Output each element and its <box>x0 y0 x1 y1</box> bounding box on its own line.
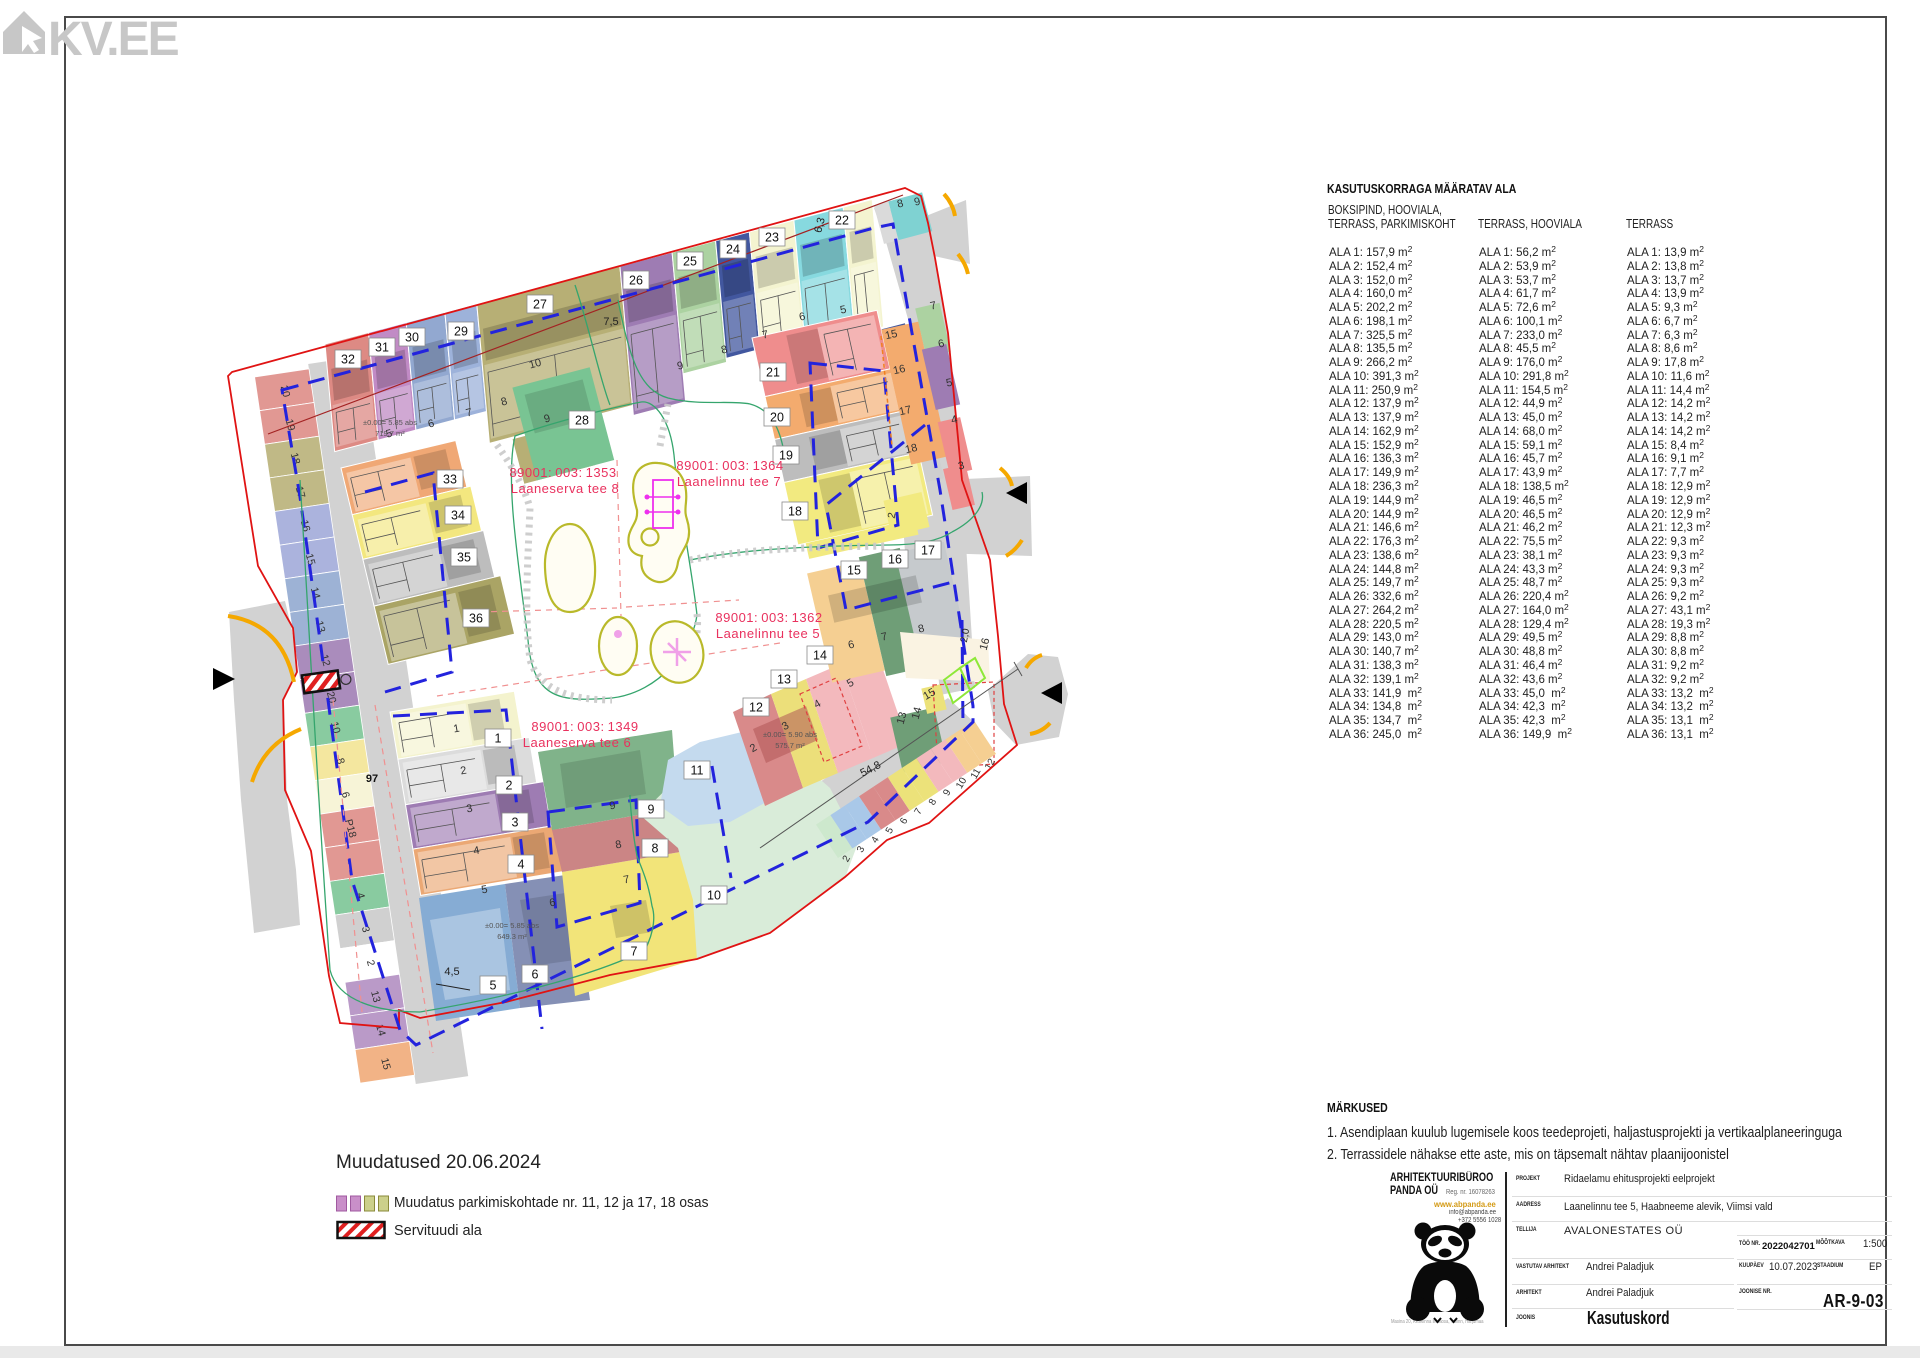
svg-text:89001: 003: 1364: 89001: 003: 1364 <box>676 458 783 473</box>
svg-text:6: 6 <box>898 816 911 827</box>
svg-text:Laaneserva tee 8: Laaneserva tee 8 <box>511 481 619 496</box>
svg-text:23: 23 <box>765 231 779 245</box>
svg-text:7,5: 7,5 <box>603 316 618 328</box>
svg-text:9: 9 <box>941 787 954 798</box>
svg-text:21: 21 <box>766 366 780 380</box>
svg-text:±0.00= 5.90 abs: ±0.00= 5.90 abs <box>763 730 817 739</box>
svg-text:31: 31 <box>375 341 389 355</box>
svg-text:26: 26 <box>629 274 643 288</box>
svg-text:8: 8 <box>652 842 659 856</box>
svg-text:Laanelinnu tee 7: Laanelinnu tee 7 <box>677 474 781 489</box>
svg-text:36: 36 <box>469 612 483 626</box>
svg-text:27: 27 <box>533 298 547 312</box>
svg-text:6: 6 <box>532 968 539 982</box>
svg-text:575.7 m²: 575.7 m² <box>775 741 805 750</box>
svg-text:4,5: 4,5 <box>444 966 459 978</box>
svg-text:89001: 003: 1349: 89001: 003: 1349 <box>531 719 638 734</box>
svg-text:89001: 003: 1353: 89001: 003: 1353 <box>509 465 616 480</box>
svg-text:Laanelinnu tee 5: Laanelinnu tee 5 <box>716 626 820 641</box>
svg-text:3: 3 <box>855 844 868 855</box>
svg-text:4: 4 <box>518 858 525 872</box>
svg-text:35: 35 <box>457 551 471 565</box>
svg-text:17: 17 <box>921 544 935 558</box>
svg-text:±0.00= 5.85 abs: ±0.00= 5.85 abs <box>363 418 417 427</box>
svg-text:12: 12 <box>749 701 763 715</box>
svg-text:7: 7 <box>631 945 638 959</box>
svg-text:32: 32 <box>341 353 355 367</box>
svg-text:4: 4 <box>869 835 882 846</box>
svg-text:8: 8 <box>927 797 940 808</box>
svg-text:97: 97 <box>366 773 378 785</box>
svg-text:1: 1 <box>495 732 502 746</box>
svg-text:15: 15 <box>847 564 861 578</box>
svg-text:5: 5 <box>490 979 497 993</box>
svg-text:16: 16 <box>888 553 902 567</box>
svg-text:10: 10 <box>707 889 721 903</box>
svg-text:29: 29 <box>454 325 468 339</box>
svg-text:34: 34 <box>451 509 465 523</box>
svg-text:Laaneserva tee 6: Laaneserva tee 6 <box>523 735 631 750</box>
svg-text:±0.00= 5.85 abs: ±0.00= 5.85 abs <box>485 921 539 930</box>
svg-text:13: 13 <box>777 673 791 687</box>
svg-text:28: 28 <box>575 414 589 428</box>
svg-text:5: 5 <box>480 884 488 897</box>
svg-text:89001: 003: 1362: 89001: 003: 1362 <box>715 610 822 625</box>
svg-text:22: 22 <box>835 214 849 228</box>
svg-text:9: 9 <box>648 803 655 817</box>
svg-text:719.7 m²: 719.7 m² <box>375 429 405 438</box>
svg-text:2: 2 <box>506 779 513 793</box>
svg-text:11: 11 <box>691 764 704 778</box>
svg-text:3: 3 <box>512 816 519 830</box>
svg-text:16: 16 <box>978 637 993 652</box>
svg-text:649.3 m²: 649.3 m² <box>497 932 527 941</box>
svg-text:18: 18 <box>788 505 802 519</box>
svg-text:30: 30 <box>405 331 419 345</box>
svg-text:14: 14 <box>813 649 827 663</box>
svg-text:33: 33 <box>443 473 457 487</box>
svg-text:5: 5 <box>884 825 897 836</box>
svg-text:20: 20 <box>770 411 784 425</box>
svg-text:25: 25 <box>683 255 697 269</box>
svg-text:24: 24 <box>726 243 740 257</box>
svg-text:4: 4 <box>950 414 959 427</box>
svg-text:7: 7 <box>913 806 926 817</box>
